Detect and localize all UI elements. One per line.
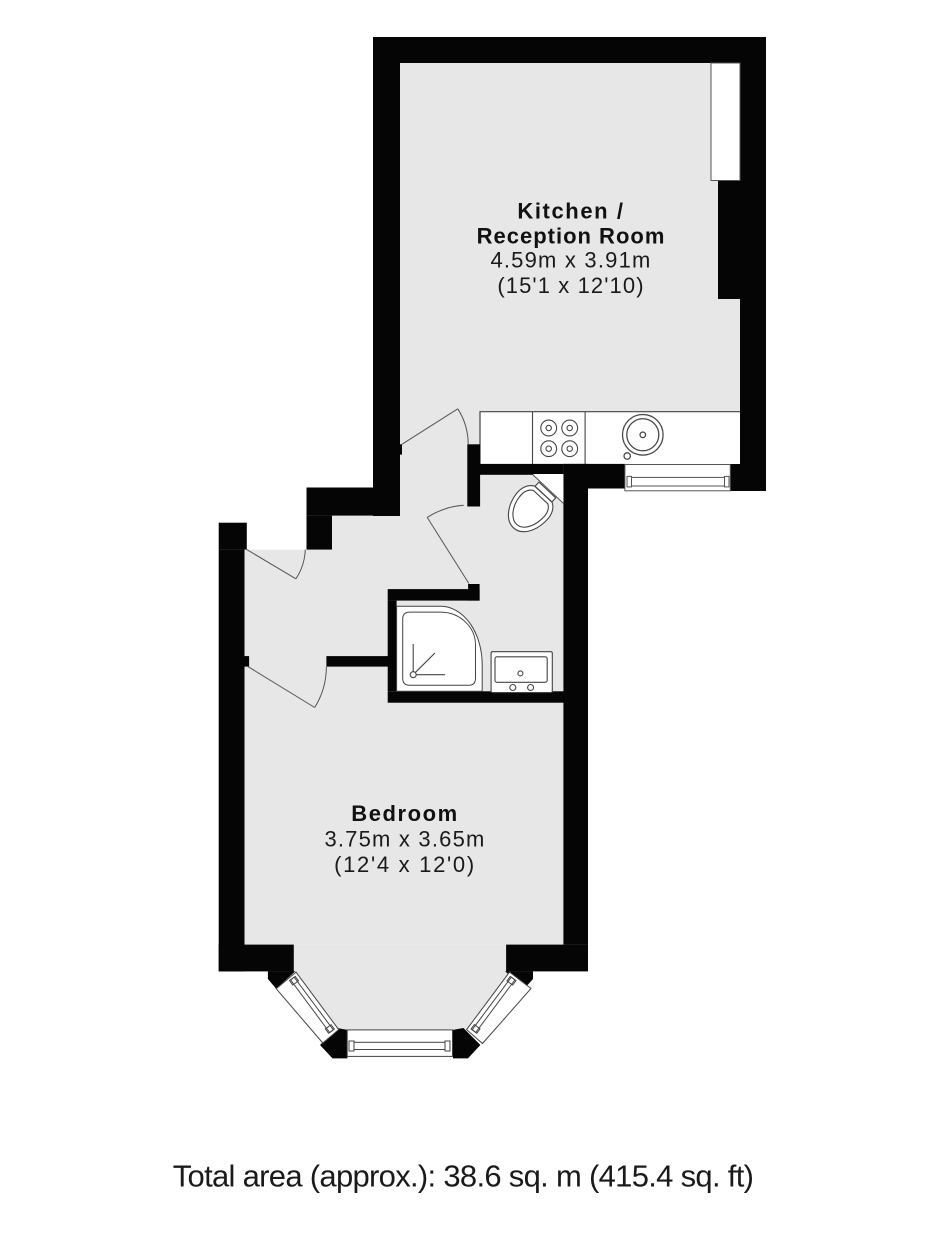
svg-text:(15'1 x 12'10): (15'1 x 12'10) [497, 273, 644, 298]
svg-text:Bedroom: Bedroom [351, 801, 458, 826]
svg-text:Kitchen /: Kitchen / [517, 199, 624, 224]
svg-text:4.59m x 3.91m: 4.59m x 3.91m [490, 248, 651, 273]
svg-text:Reception Room: Reception Room [477, 224, 666, 249]
svg-text:3.75m x 3.65m: 3.75m x 3.65m [324, 827, 485, 852]
svg-text:Total area (approx.): 38.6 sq.: Total area (approx.): 38.6 sq. m (415.4 … [173, 1158, 754, 1193]
svg-text:(12'4 x 12'0): (12'4 x 12'0) [334, 852, 476, 877]
